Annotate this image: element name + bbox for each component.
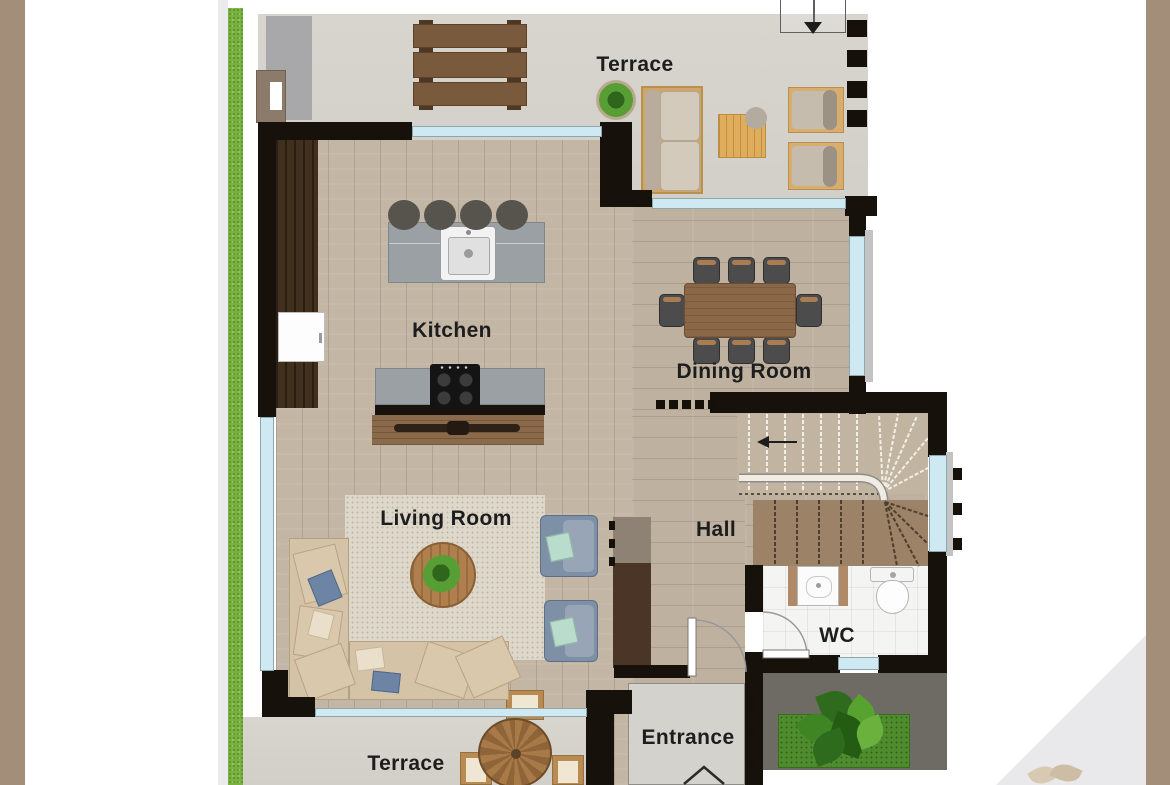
- throw-pillow-blue-2: [371, 671, 401, 694]
- tv-cabinet-dot-2: [609, 539, 615, 548]
- dining-chair-7: [659, 294, 685, 327]
- room-label-kitchen: Kitchen: [412, 319, 492, 343]
- left-margin-bar: [0, 0, 25, 785]
- bar-stool-3: [460, 200, 492, 230]
- room-label-dining-room: Dining Room: [676, 360, 811, 384]
- room-label-living-room: Living Room: [380, 507, 512, 531]
- plot-edge-strip: [218, 0, 228, 785]
- balcony-post-1: [953, 468, 962, 480]
- outdoor-round-table: [478, 718, 552, 785]
- wall: [745, 565, 763, 612]
- window: [260, 417, 274, 671]
- grass-strip: [228, 8, 243, 785]
- window-frame: [865, 230, 873, 382]
- corner-leaf-motif: [1026, 758, 1086, 785]
- coffee-table-plant: [423, 555, 463, 595]
- right-margin-bar: [1146, 0, 1170, 785]
- refrigerator: [278, 312, 325, 362]
- column-post-2: [847, 50, 867, 67]
- room-label-hall: Hall: [696, 518, 736, 542]
- tv-cabinet-dot-3: [609, 557, 615, 566]
- window-frame: [946, 452, 953, 556]
- outdoor-chair-right: [552, 755, 584, 785]
- wall: [928, 413, 947, 457]
- kitchen-sink: [440, 226, 496, 281]
- dining-chair-8: [796, 294, 822, 327]
- bar-stool-1: [388, 200, 420, 230]
- room-label-wc: WC: [819, 624, 855, 648]
- window: [838, 657, 879, 670]
- tv-cabinet-dot-1: [609, 521, 615, 530]
- throw-pillow-cream-2: [355, 646, 386, 672]
- wall: [928, 551, 947, 673]
- balcony-post-2: [953, 503, 962, 515]
- cabinet-handle: [394, 424, 520, 432]
- washbasin: [788, 566, 848, 606]
- terrace-armchair-1: [788, 87, 844, 133]
- entrance-door: [684, 616, 748, 678]
- terrace-dining-table: [413, 20, 527, 110]
- wall: [849, 196, 866, 240]
- wall: [258, 122, 276, 417]
- room-label-entrance: Entrance: [641, 726, 734, 750]
- wc-door: [760, 606, 816, 662]
- balcony-post-3: [953, 538, 962, 550]
- wall: [710, 392, 947, 413]
- column-post-4: [847, 110, 867, 127]
- wall: [614, 665, 690, 678]
- bar-stool-2: [424, 200, 456, 230]
- opening-dash-3: [682, 400, 691, 409]
- staircase: [735, 408, 931, 568]
- kitchen-cabinet: [372, 415, 544, 445]
- dining-chair-1: [693, 257, 720, 284]
- dining-chair-3: [763, 257, 790, 284]
- wall: [586, 690, 632, 714]
- cooktop: [430, 364, 480, 408]
- opening-dash-1: [656, 400, 665, 409]
- lounge-armchair-1: [540, 515, 598, 577]
- terrace-coffee-table: [718, 114, 766, 158]
- toilet: [868, 567, 916, 615]
- down-arrow-icon: [804, 22, 822, 34]
- room-label-terrace-top: Terrace: [596, 53, 673, 77]
- wall: [600, 190, 652, 207]
- window: [652, 198, 846, 209]
- wall: [258, 122, 412, 140]
- dining-table: [684, 283, 796, 338]
- entrance-post-2: [748, 728, 756, 739]
- tall-cabinet: [276, 140, 318, 408]
- dining-chair-2: [728, 257, 755, 284]
- terrace-armchair-2: [788, 142, 844, 190]
- entrance-post-1: [748, 698, 756, 709]
- window: [849, 236, 865, 376]
- potted-plant: [596, 80, 636, 120]
- opening-dash-5: [708, 400, 717, 409]
- tv-cabinet: [613, 517, 651, 668]
- opening-dash-4: [695, 400, 704, 409]
- window: [315, 708, 587, 717]
- wall: [586, 714, 614, 785]
- column-post-1: [847, 20, 867, 37]
- terrace-sofa: [641, 86, 703, 194]
- entrance-post-3: [748, 758, 756, 769]
- opening-dash-2: [669, 400, 678, 409]
- window: [929, 455, 947, 552]
- column-post-3: [847, 81, 867, 98]
- room-label-terrace-bottom: Terrace: [367, 752, 444, 776]
- entrance-arrow-icon: [682, 764, 726, 785]
- window: [412, 126, 602, 137]
- outdoor-grill: [256, 70, 286, 123]
- lounge-armchair-2: [544, 600, 598, 662]
- bar-stool-4: [496, 200, 528, 230]
- wall: [262, 697, 315, 717]
- wall: [878, 655, 930, 673]
- floor-plan-page: Terrace Kitchen Dining Room Living Room …: [0, 0, 1170, 785]
